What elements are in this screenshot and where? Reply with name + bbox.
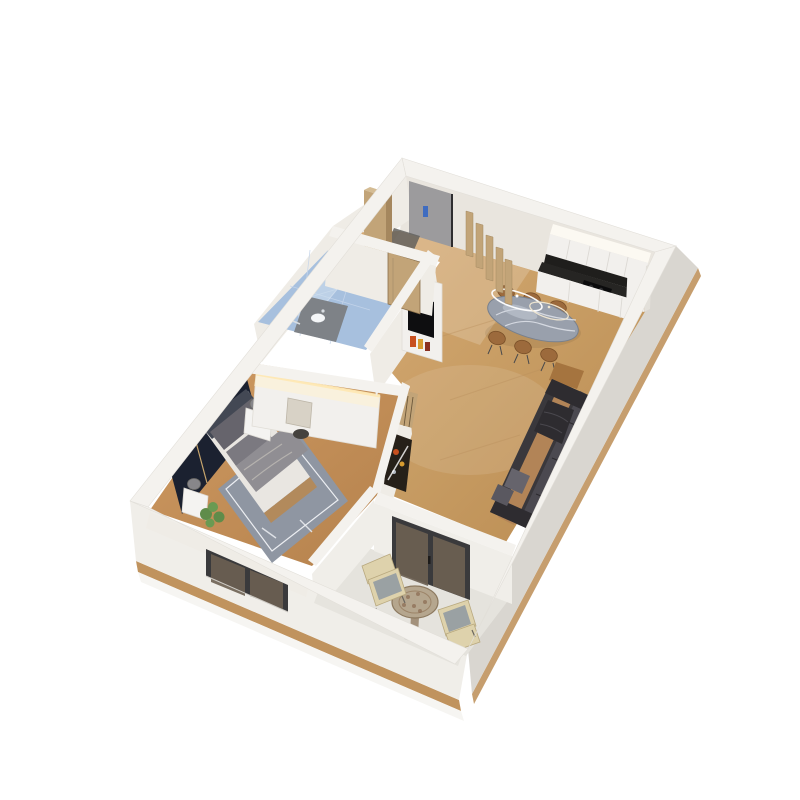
mosaic-round-table (392, 586, 438, 618)
chair-back (446, 624, 480, 652)
bedroom (168, 366, 380, 563)
entry-hall (364, 181, 512, 305)
dining-chairs-far (496, 284, 568, 315)
window-frame (206, 549, 288, 612)
tv-screen (408, 294, 434, 338)
nightstand-right (244, 408, 272, 441)
inner-wall-faces (146, 176, 655, 597)
wall-top-bedroom-living (372, 382, 410, 494)
balcony-return-wall-face (312, 500, 378, 614)
window-sill (206, 576, 288, 612)
bed-headboard (200, 389, 258, 439)
wall-top-southwest (130, 501, 468, 664)
sofa-pillow-1 (504, 468, 530, 494)
side-table (549, 362, 584, 389)
dining-chairs-near (487, 329, 559, 372)
vanity-niche (286, 398, 312, 428)
throw-folds (540, 412, 568, 433)
floor-bathroom-tile (258, 240, 432, 350)
faucet (321, 309, 324, 312)
wall-face-bedroom-southeast (378, 392, 412, 538)
window-pane-right (250, 570, 283, 609)
potted-plant (200, 502, 225, 528)
slatted-bedroom-door (398, 390, 418, 428)
wall-top-balcony-bedroom (308, 486, 378, 566)
tall-cabinet-side (644, 263, 652, 312)
wall-tops (130, 158, 676, 664)
floor-tile-seams (430, 312, 545, 460)
bathroom-wall-top-southeast (364, 250, 436, 352)
chair-cushion (443, 605, 471, 632)
wall-face-northeast-inner (400, 176, 655, 305)
shower-led-edge (296, 246, 342, 302)
bathroom-tile-grid (290, 250, 395, 344)
rug-maze-pattern (250, 470, 312, 538)
rug-border-pattern (226, 437, 338, 551)
bed-pillows (210, 398, 266, 450)
art-accent-2 (400, 462, 405, 467)
sofa-armrest-bottom (490, 498, 533, 528)
chair-back (362, 554, 396, 584)
sofa-pillow-2 (491, 484, 514, 506)
balcony-chair-right (438, 600, 480, 652)
wall-face-bathroom-northwest (254, 226, 341, 362)
floor-living-kitchen-hall (340, 231, 649, 542)
stove-knobs (585, 293, 609, 302)
wall-face-bedroom-southwest (146, 512, 310, 597)
cove-light-strip (170, 366, 250, 464)
wall-face-bathroom-southeast (370, 262, 440, 396)
balcony-door-pane-right (433, 536, 465, 598)
towel-bar (283, 317, 300, 324)
tv-media-unit (402, 272, 442, 362)
living-room (490, 362, 588, 528)
upper-cabinet-seams (566, 240, 628, 277)
sofa-back-cushions (518, 391, 588, 528)
headboard-wall-panels (168, 368, 258, 514)
door-slats (399, 394, 413, 427)
apartment-3d-scene (0, 0, 800, 800)
slab-edge-southwest (136, 561, 461, 711)
wardrobe-top (364, 187, 392, 197)
tall-cabinet-fridge (626, 260, 646, 312)
wall-top-balcony-living (374, 492, 516, 556)
media-wall (370, 262, 442, 538)
bed-double (202, 391, 310, 513)
bathroom-door (388, 252, 420, 314)
table-lamp-left (188, 479, 201, 490)
wall-top-bedroom-bathroom (248, 363, 410, 397)
upper-cabinets (546, 234, 648, 283)
table-base-shadow (404, 635, 424, 641)
shower-glass-panel (296, 246, 348, 332)
bathroom-vanity-marble (294, 296, 348, 342)
backsplash (544, 254, 644, 292)
chair-seat (438, 600, 476, 636)
chair-legs (488, 345, 555, 372)
balcony (312, 500, 512, 666)
base-cabinet-seams (568, 282, 622, 318)
balcony-door-frame (392, 516, 470, 600)
wall-top-southeast (468, 246, 676, 649)
sofa-bench-seat (498, 384, 576, 525)
floor-plan-render (0, 0, 800, 800)
wardrobe-front (364, 190, 386, 253)
wall-top-northeast (402, 158, 676, 252)
area-rug (218, 427, 348, 563)
balcony-door-pane-left (396, 522, 428, 586)
vanity-led-glow (254, 374, 380, 408)
table-pedestal (410, 615, 419, 636)
wardrobe-side (386, 194, 392, 253)
art-accent-3 (392, 470, 396, 474)
art-panel (384, 432, 412, 492)
balcony-chair-left (362, 554, 406, 616)
bathroom-walls (248, 226, 516, 566)
floor-hall-highlight (356, 231, 530, 345)
floors (150, 231, 649, 656)
floor-bedroom (150, 363, 410, 566)
vanity-stool (293, 429, 309, 439)
bed-foot-frame (264, 477, 317, 523)
wall-top-northwest (130, 158, 406, 507)
countertop (538, 262, 642, 301)
bed-throw-blanket (236, 424, 308, 492)
balcony-door-wall-face (374, 503, 512, 604)
slab-bottom-southwest (138, 572, 464, 721)
sofa-sectional (490, 379, 588, 528)
sofa-armrest-top (545, 379, 588, 409)
cooktop (581, 280, 612, 298)
bedroom-window (206, 549, 288, 612)
floor-balcony (316, 545, 510, 656)
floor-sheen (380, 365, 560, 475)
art-accent-1 (393, 449, 399, 455)
mosaic-dots (402, 592, 427, 613)
chair-legs (376, 596, 405, 616)
wall-face-entry-northwest (333, 176, 412, 268)
panel-gold-trim (193, 399, 233, 483)
outer-wall-face-southeast (468, 246, 698, 694)
slab-edge-southeast (472, 268, 701, 704)
chair-seat (368, 568, 406, 606)
vanity-dresser-unit (252, 374, 380, 448)
blanket-folds (244, 444, 292, 480)
bathroom-wall-face-hall-side (325, 236, 436, 316)
nightstand-left (182, 488, 208, 520)
dining-table-marble-oval (482, 287, 583, 351)
doormat (388, 228, 420, 250)
burner-1 (589, 285, 593, 289)
kitchen (536, 224, 652, 322)
bathroom (283, 246, 348, 342)
sink-basin (311, 314, 325, 323)
table-lamp-right (250, 398, 264, 410)
burner-2 (599, 288, 603, 292)
bathroom-wall-top-northeast (329, 226, 440, 266)
building-shell (130, 246, 701, 721)
dining-area (482, 284, 583, 372)
chair-legs (448, 630, 475, 648)
table-shadow (485, 318, 581, 348)
art-highlight (388, 446, 408, 480)
slat-room-divider (466, 211, 512, 305)
vanity-led-strip (256, 374, 380, 396)
throw-blanket (534, 400, 574, 444)
marble-veining (496, 309, 576, 331)
cushion-seams (536, 422, 578, 498)
tv-reflection (410, 300, 430, 307)
mosaic-ring (399, 591, 431, 613)
wire-pendant-light (490, 285, 570, 324)
parapet-inner-face (314, 592, 462, 666)
shelf-books (410, 336, 430, 351)
door-handle (428, 556, 431, 564)
entrance-door (409, 181, 452, 247)
base-cabinets (536, 271, 638, 322)
outer-wall-face-southwest (130, 501, 468, 700)
chair-cushion (373, 573, 402, 600)
door-handle-plate (423, 206, 428, 217)
window-pane-left (211, 554, 245, 596)
soffit-light-band (550, 224, 651, 263)
table-highlight (501, 301, 539, 323)
bed-pillow-second (226, 424, 272, 466)
